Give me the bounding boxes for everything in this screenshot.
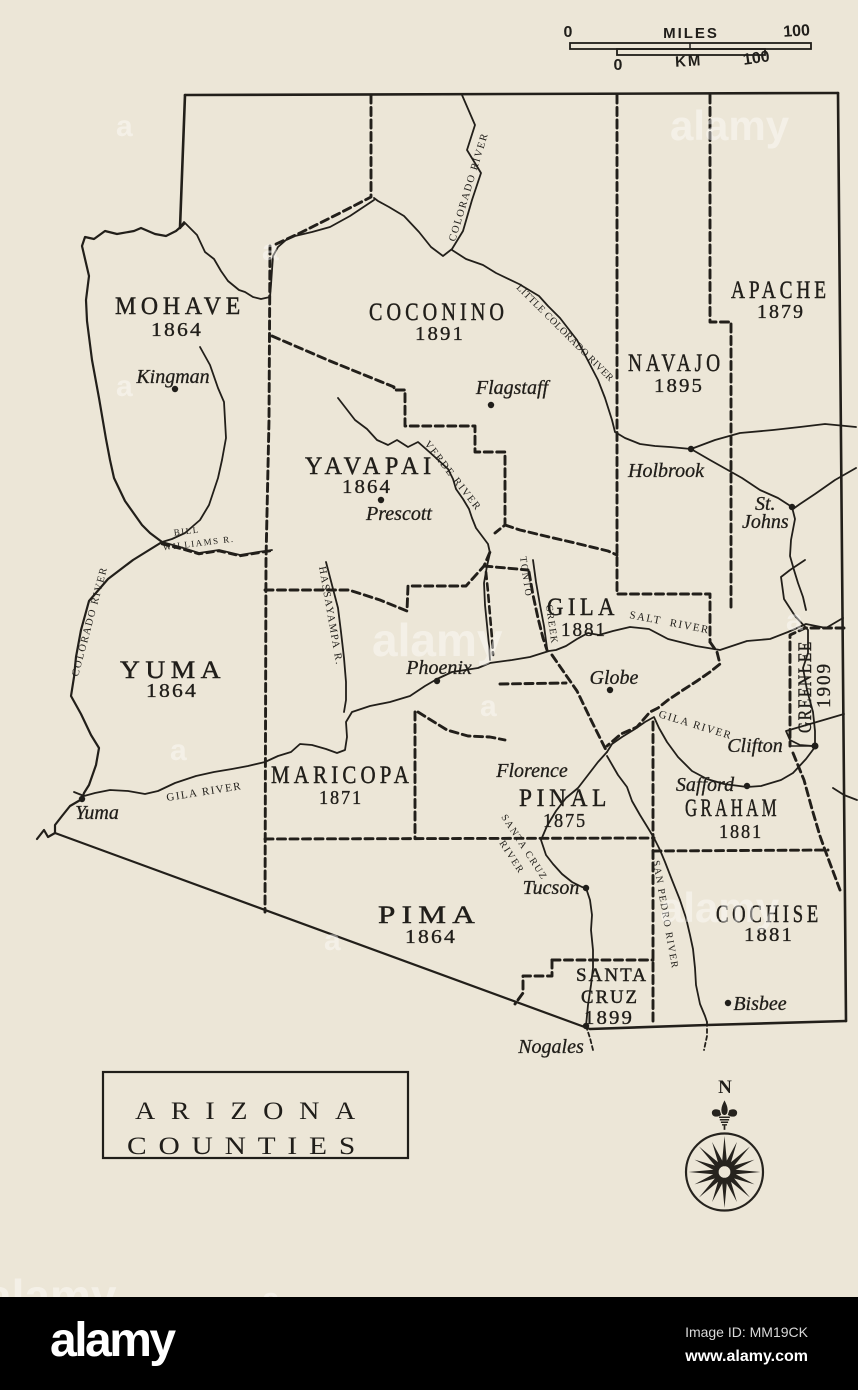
svg-text:a: a <box>786 604 803 637</box>
svg-text:1871: 1871 <box>319 787 363 809</box>
svg-text:NAVAJO: NAVAJO <box>628 350 724 377</box>
svg-text:Flagstaff: Flagstaff <box>475 377 551 399</box>
svg-text:N: N <box>718 1077 732 1098</box>
svg-text:Clifton: Clifton <box>727 735 783 757</box>
svg-text:1881: 1881 <box>561 619 607 641</box>
svg-text:1864: 1864 <box>146 680 198 702</box>
svg-text:1864: 1864 <box>342 476 392 498</box>
svg-text:PIMA: PIMA <box>378 902 481 929</box>
svg-text:a: a <box>170 734 187 767</box>
svg-text:COUNTIES: COUNTIES <box>127 1133 367 1160</box>
svg-text:1864: 1864 <box>405 926 457 948</box>
svg-text:Globe: Globe <box>590 667 639 689</box>
svg-text:0: 0 <box>614 57 623 74</box>
svg-text:a: a <box>116 370 133 403</box>
svg-text:Yuma: Yuma <box>75 802 119 824</box>
svg-text:1864: 1864 <box>151 319 203 341</box>
svg-text:Image ID: MM19CK: Image ID: MM19CK <box>685 1324 809 1340</box>
svg-text:alamy: alamy <box>660 884 780 931</box>
svg-text:MOHAVE: MOHAVE <box>115 293 245 320</box>
svg-text:MARICOPA: MARICOPA <box>271 762 413 789</box>
svg-text:GILA: GILA <box>547 594 619 621</box>
svg-text:alamy: alamy <box>372 614 503 666</box>
svg-text:PINAL: PINAL <box>519 785 611 812</box>
svg-text:a: a <box>262 234 279 267</box>
svg-text:GRAHAM: GRAHAM <box>685 795 780 822</box>
svg-text:ARIZONA: ARIZONA <box>135 1098 371 1125</box>
svg-text:a: a <box>116 110 133 143</box>
svg-text:Johns: Johns <box>742 511 789 533</box>
svg-text:KM: KM <box>675 52 703 70</box>
svg-text:1891: 1891 <box>415 323 465 345</box>
svg-text:1895: 1895 <box>654 375 704 397</box>
svg-text:1899: 1899 <box>584 1007 634 1029</box>
svg-text:Kingman: Kingman <box>135 366 209 388</box>
svg-text:COCONINO: COCONINO <box>369 299 508 326</box>
svg-text:Tucson: Tucson <box>523 877 580 899</box>
svg-text:1875: 1875 <box>543 810 587 832</box>
svg-text:100: 100 <box>783 22 811 41</box>
svg-text:www.alamy.com: www.alamy.com <box>684 1348 808 1365</box>
svg-text:CRUZ: CRUZ <box>581 987 639 1008</box>
svg-text:1881: 1881 <box>719 821 763 843</box>
svg-text:Holbrook: Holbrook <box>627 460 705 482</box>
svg-text:1879: 1879 <box>757 301 805 323</box>
svg-text:a: a <box>480 690 497 723</box>
svg-text:Florence: Florence <box>495 760 568 782</box>
svg-text:Nogales: Nogales <box>517 1036 584 1058</box>
svg-text:APACHE: APACHE <box>731 277 830 304</box>
svg-text:MILES: MILES <box>663 25 719 42</box>
svg-text:Safford: Safford <box>676 774 735 796</box>
svg-text:Bisbee: Bisbee <box>733 993 786 1015</box>
svg-text:SANTA: SANTA <box>576 965 648 986</box>
svg-text:1909: 1909 <box>813 662 835 708</box>
svg-text:Prescott: Prescott <box>365 503 432 525</box>
svg-text:alamy: alamy <box>670 102 790 149</box>
svg-text:0: 0 <box>564 24 573 41</box>
svg-text:alamy: alamy <box>50 1314 176 1367</box>
svg-text:a: a <box>324 924 341 957</box>
